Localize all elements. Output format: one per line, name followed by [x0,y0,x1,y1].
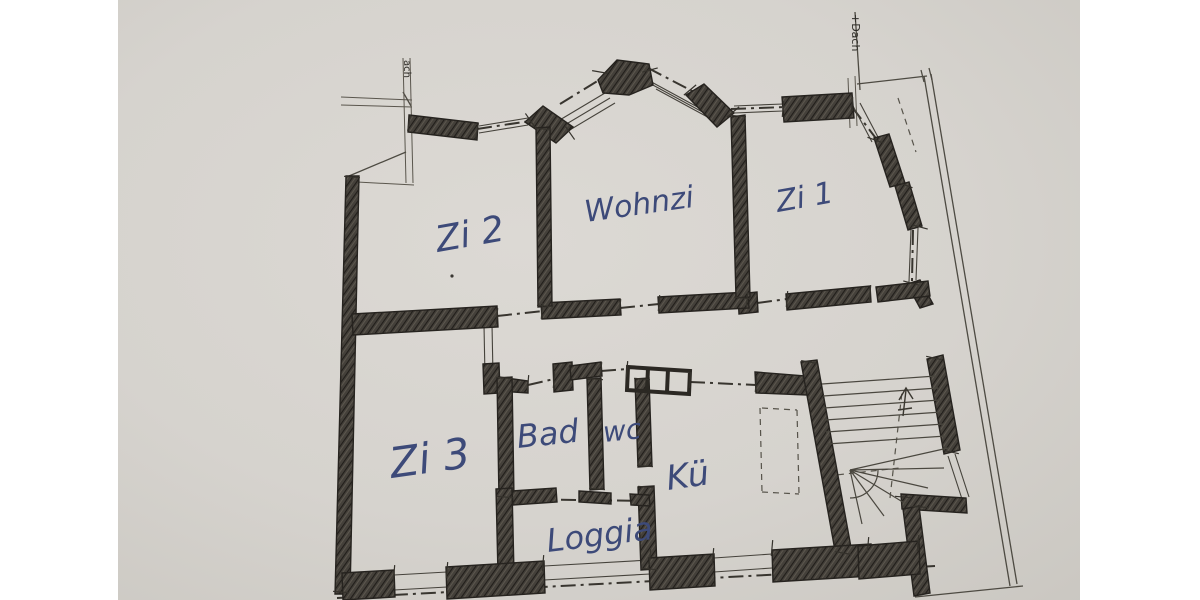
room-label-kue: Kü [664,453,712,499]
floorplan-photo: Zi 2 Wohnzi Zi 1 Zi 3 Bad wc Kü Loggia +… [0,0,1200,600]
roof-note-left: ach [401,60,412,78]
roof-note-right: +Dach [849,14,862,51]
screenshot-root: Zi 2 Wohnzi Zi 1 Zi 3 Bad wc Kü Loggia +… [0,0,1200,600]
ink-dot [450,274,453,277]
room-label-bad: Bad [515,412,581,456]
room-label-wc: wc [601,412,643,449]
